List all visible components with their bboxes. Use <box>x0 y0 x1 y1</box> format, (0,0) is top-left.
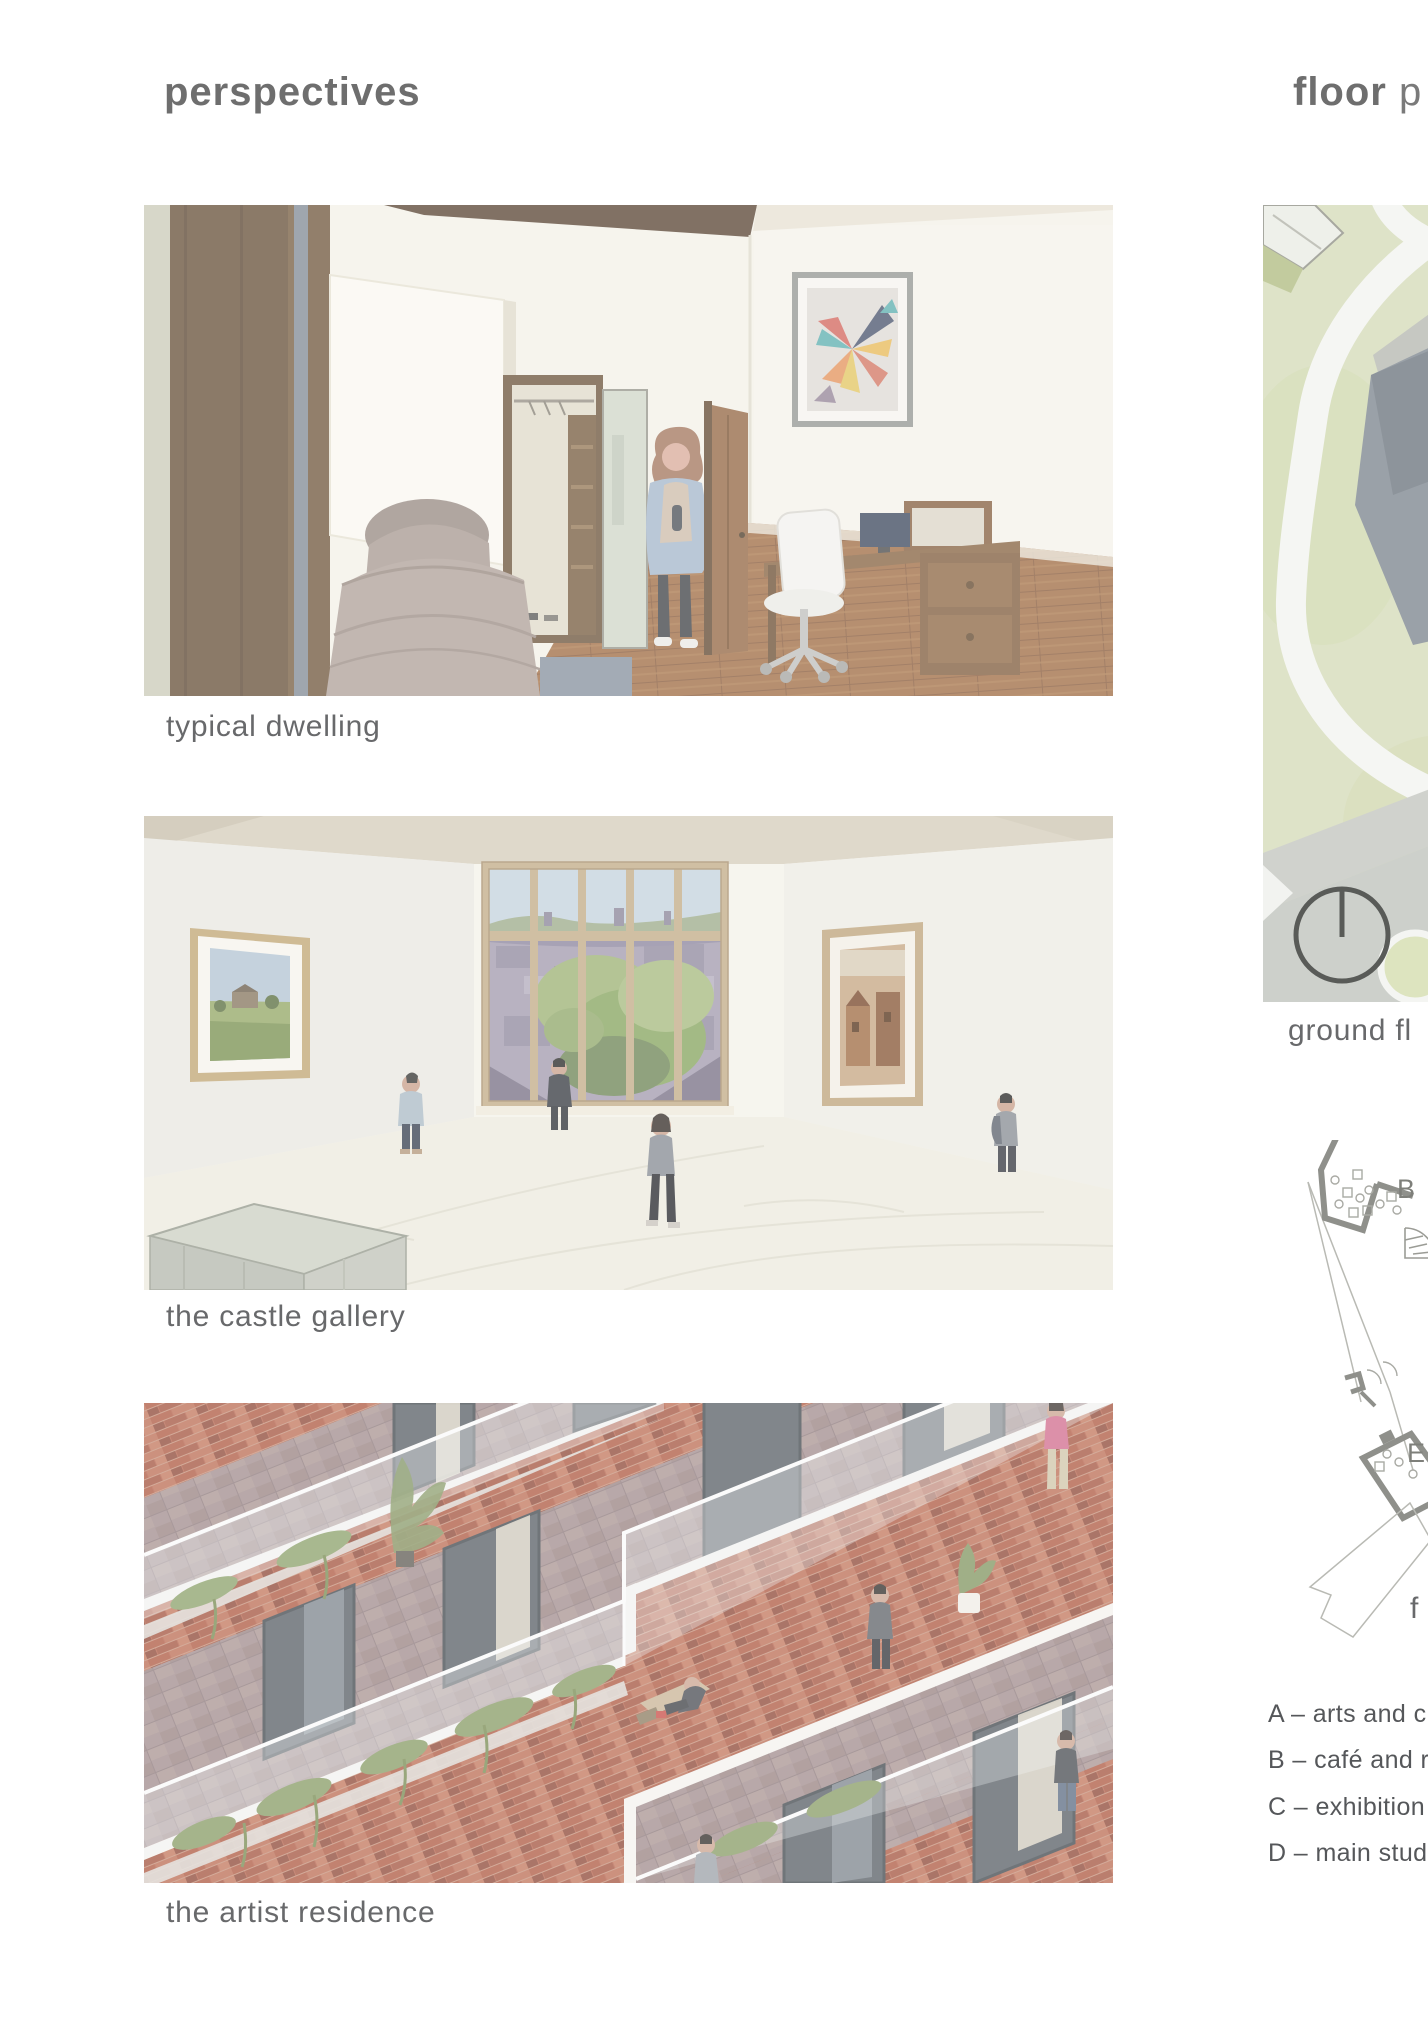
floor-plans-title-rest: p <box>1399 70 1422 114</box>
portfolio-page: { "headers": { "perspectives": "perspect… <box>0 0 1428 2018</box>
caption-ground-floor: ground fl <box>1288 1014 1412 1048</box>
perspective-artist-residence-image <box>144 1403 1113 1883</box>
fade-overlay <box>144 205 1113 696</box>
residence-render <box>144 1403 1113 1883</box>
plan-label-e: E <box>1407 1438 1425 1468</box>
perspective-typical-dwelling-image <box>144 205 1113 696</box>
floor-plan: B E <box>1263 1140 1428 1640</box>
ground-floor-site-plan-image <box>1263 205 1428 1002</box>
floor-plan-room-b: B <box>1321 1140 1415 1230</box>
fade-overlay <box>144 816 1113 1290</box>
caption-first-floor: f <box>1410 1592 1419 1626</box>
plan-label-b: B <box>1397 1174 1415 1204</box>
fade-overlay <box>144 1403 1113 1883</box>
legend-item-d: D – main studi <box>1268 1839 1428 1869</box>
page-title-floor-plans: floor p <box>1293 70 1422 115</box>
floor-plan-stair <box>1405 1228 1428 1258</box>
site-plan <box>1263 205 1428 1002</box>
perspective-castle-gallery-image <box>144 816 1113 1290</box>
page-title-perspectives: perspectives <box>164 70 421 115</box>
floor-plan-boundary <box>1308 1182 1413 1470</box>
floor-plan-room-e: E <box>1363 1434 1428 1518</box>
legend-item-a: A – arts and cr <box>1268 1700 1428 1730</box>
caption-typical-dwelling: typical dwelling <box>166 710 381 744</box>
floor-plans-title-bold: floor <box>1293 70 1387 114</box>
first-floor-plan-image: B E <box>1263 1140 1428 1640</box>
caption-castle-gallery: the castle gallery <box>166 1300 406 1334</box>
legend-item-c: C – exhibition s <box>1268 1793 1428 1823</box>
gallery-render <box>144 816 1113 1290</box>
bedroom-render <box>144 205 1113 696</box>
legend-item-b: B – café and re <box>1268 1746 1428 1776</box>
caption-artist-residence: the artist residence <box>166 1896 435 1930</box>
